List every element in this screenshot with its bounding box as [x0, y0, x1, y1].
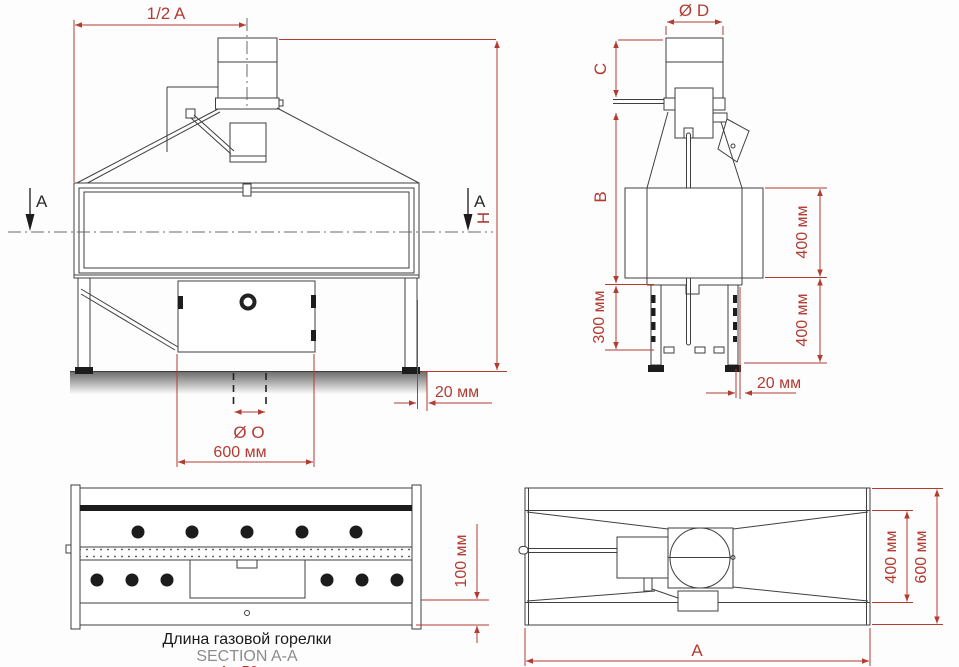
- front-leg-left: [78, 278, 90, 368]
- dim-400mm-upper-label: 400 мм: [794, 205, 811, 258]
- dim-20mm-side: 20 мм: [706, 287, 801, 399]
- panel-knob: [242, 296, 255, 309]
- diagonal-brace: [81, 289, 178, 350]
- dim-100mm-label: 100 мм: [453, 534, 470, 587]
- drawing-svg: A A 1/2 A H 20 мм: [0, 0, 959, 667]
- hinge-mark: [311, 295, 316, 308]
- caption-title: Длина газовой горелки: [162, 631, 331, 648]
- dim-dia-d-label: Ø D: [679, 1, 709, 20]
- side-hook: [66, 545, 71, 553]
- gas-pipe-cap: [519, 547, 528, 555]
- dim-300mm-label: 300 мм: [591, 290, 608, 343]
- damper-box: [675, 88, 713, 138]
- dim-20mm-side-label: 20 мм: [757, 375, 801, 392]
- technical-drawing-page: A A 1/2 A H 20 мм: [0, 0, 959, 667]
- dim-a-top-label: A: [691, 641, 703, 660]
- dim-h-label: H: [474, 212, 493, 224]
- damper-handle: [186, 109, 195, 118]
- dim-20mm-front-label: 20 мм: [435, 384, 479, 401]
- dim-a-top: A: [525, 628, 870, 666]
- leg-adjust-marks: [652, 295, 738, 342]
- dim-400mm-top: 400 мм: [872, 511, 913, 603]
- end-cap-left: [71, 485, 80, 629]
- front-view: A A 1/2 A H 20 мм: [8, 4, 507, 467]
- front-leg-right: [405, 278, 417, 368]
- dim-b-label: B: [591, 191, 610, 202]
- ash-panel: [178, 281, 315, 352]
- section-label-right: A: [474, 192, 486, 211]
- end-cap-right: [412, 485, 421, 629]
- caption-burner-length: A - 50 мм: [219, 663, 283, 667]
- bottom-box: [678, 591, 718, 611]
- dim-600mm-front: 600 мм: [177, 354, 314, 467]
- dim-c-label: C: [591, 63, 610, 75]
- dim-400mm-top-label: 400 мм: [883, 530, 900, 583]
- hinge-mark: [311, 330, 316, 341]
- center-box-tab: [237, 560, 257, 568]
- section-label-left: A: [36, 192, 48, 211]
- cross-tabs: [664, 347, 724, 353]
- dim-400mm-upper: 400 мм: [765, 188, 827, 278]
- dim-600mm-top-label: 600 мм: [913, 530, 930, 583]
- top-view: 400 мм 600 мм A: [519, 488, 943, 666]
- firebox: [74, 183, 419, 278]
- dim-half-a-label: 1/2 A: [147, 4, 186, 23]
- side-foot-right: [725, 365, 741, 372]
- dim-100mm: 100 мм: [416, 524, 489, 643]
- dim-dia-d: Ø D: [666, 1, 723, 35]
- dim-300mm: 300 мм: [591, 285, 654, 351]
- ground-shading: [70, 372, 427, 394]
- damper-flap: [718, 119, 749, 162]
- section-cut-marker-left: A: [26, 188, 49, 231]
- side-foot-left: [648, 365, 664, 372]
- dim-c: C: [591, 40, 663, 97]
- dim-b: B: [591, 113, 616, 283]
- perforated-strip: [80, 547, 412, 560]
- damper-rod: [191, 115, 234, 154]
- burner-bar: [80, 505, 412, 511]
- dim-600mm-front-label: 600 мм: [213, 444, 266, 461]
- section-aa-view: 100 мм Длина газовой горелки SECTION A-A…: [66, 485, 489, 667]
- dim-400mm-lower: 400 мм: [744, 279, 827, 364]
- side-view: Ø D C B 300 мм 400 мм: [591, 1, 827, 399]
- dim-dia-o-label: Ø O: [233, 423, 264, 442]
- leg-foot-left: [75, 367, 93, 374]
- control-box: [617, 537, 668, 578]
- top-center-tab: [243, 184, 251, 196]
- hinge-mark: [178, 296, 183, 309]
- dim-400mm-lower-label: 400 мм: [794, 293, 811, 346]
